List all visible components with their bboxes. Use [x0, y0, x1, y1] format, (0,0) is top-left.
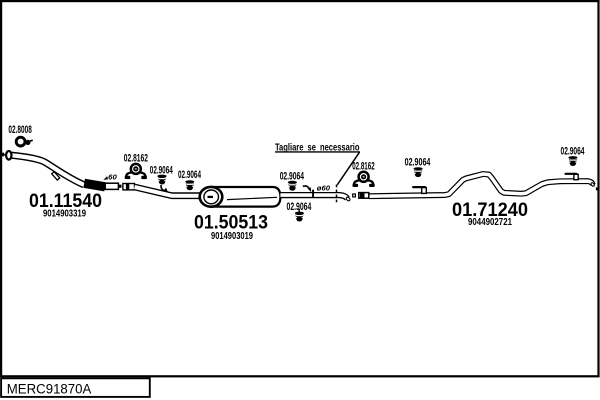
svg-text:9014903319: 9014903319 — [43, 209, 86, 220]
svg-text:02.8008: 02.8008 — [8, 124, 31, 136]
svg-text:02.9064: 02.9064 — [561, 145, 585, 157]
svg-text:MERC91870A: MERC91870A — [7, 382, 92, 397]
svg-text:02.8162: 02.8162 — [124, 152, 148, 164]
svg-text:60: 60 — [108, 175, 117, 182]
svg-text:02.9064: 02.9064 — [178, 169, 201, 181]
svg-text:02.9064: 02.9064 — [405, 157, 431, 169]
svg-text:9044902721: 9044902721 — [468, 217, 512, 228]
svg-text:02.8162: 02.8162 — [352, 160, 375, 172]
svg-text:9014903019: 9014903019 — [211, 231, 253, 242]
svg-text:ø60: ø60 — [317, 184, 330, 193]
svg-text:02.9064: 02.9064 — [280, 171, 304, 183]
svg-text:02.9064: 02.9064 — [150, 165, 173, 177]
svg-text:02.9064: 02.9064 — [287, 201, 312, 213]
